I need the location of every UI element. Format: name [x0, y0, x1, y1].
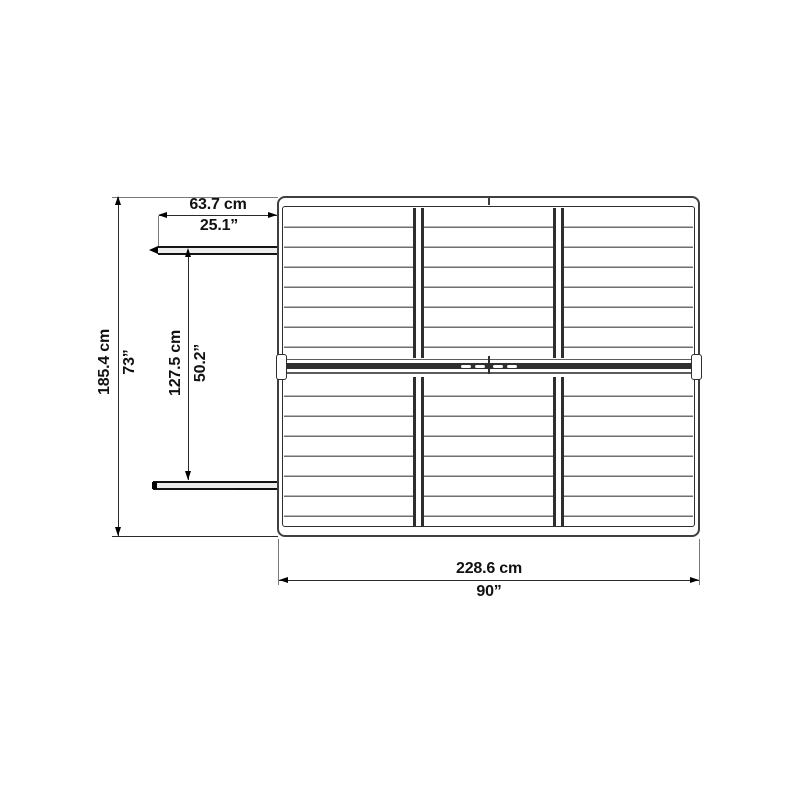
dimension-line	[188, 250, 189, 480]
dimension-line	[159, 215, 277, 216]
dimension-line	[118, 197, 119, 536]
door-leaf-top	[158, 246, 277, 255]
arrow-up-icon	[185, 248, 191, 257]
mullion	[413, 377, 424, 526]
roof-panel	[284, 377, 413, 526]
dimension-label-cm: 228.6 cm	[456, 560, 522, 578]
mullion	[413, 208, 424, 358]
dimension-label-inches: 90”	[476, 583, 501, 601]
panel-row-top	[284, 208, 694, 358]
arrow-left-icon	[279, 577, 288, 583]
door-end-cap	[152, 482, 157, 489]
arrow-up-icon	[115, 196, 121, 205]
arrow-down-icon	[115, 527, 121, 536]
ridge-end-cap-right	[691, 354, 702, 380]
roof-panel	[424, 208, 553, 358]
mullion	[553, 208, 564, 358]
roof-panel	[284, 208, 413, 358]
ridge-vent-slot	[475, 365, 485, 368]
arrow-down-icon	[185, 471, 191, 480]
mullion	[553, 377, 564, 526]
dimension-label-inches: 73”	[121, 349, 139, 374]
ridge-vent-slot	[493, 365, 503, 368]
roof-panel	[564, 208, 693, 358]
arrow-right-icon	[690, 577, 699, 583]
ridge-beam	[284, 358, 694, 377]
ridge-center-tick	[488, 356, 490, 374]
dimension-diagram-canvas: 185.4 cm 73” 127.5 cm 50.2” 63.7 cm 25.1…	[0, 0, 800, 800]
dimension-label-cm: 127.5 cm	[167, 330, 185, 396]
dimension-line	[279, 580, 699, 581]
door-edge-shade	[235, 488, 277, 490]
extension-line	[112, 536, 278, 537]
ridge-vent-slot	[507, 365, 517, 368]
door-leaf-bottom	[153, 481, 277, 490]
ridge-end-cap-left	[276, 354, 287, 380]
dimension-label-inches: 50.2”	[192, 344, 210, 382]
dimension-label-cm: 185.4 cm	[96, 329, 114, 395]
shed-top-view	[277, 196, 700, 537]
extension-line	[158, 216, 159, 246]
roof-panel	[424, 377, 553, 526]
arrow-right-icon	[268, 212, 277, 218]
panel-grid	[284, 208, 694, 526]
roof-panel	[564, 377, 693, 526]
panel-row-bottom	[284, 377, 694, 526]
arrow-left-icon	[158, 212, 167, 218]
ridge-vent-slot	[461, 365, 471, 368]
dimension-label-inches: 25.1”	[200, 217, 238, 235]
door-arrow-icon	[149, 246, 158, 254]
dimension-label-cm: 63.7 cm	[189, 196, 246, 214]
center-tick-top	[488, 198, 490, 205]
